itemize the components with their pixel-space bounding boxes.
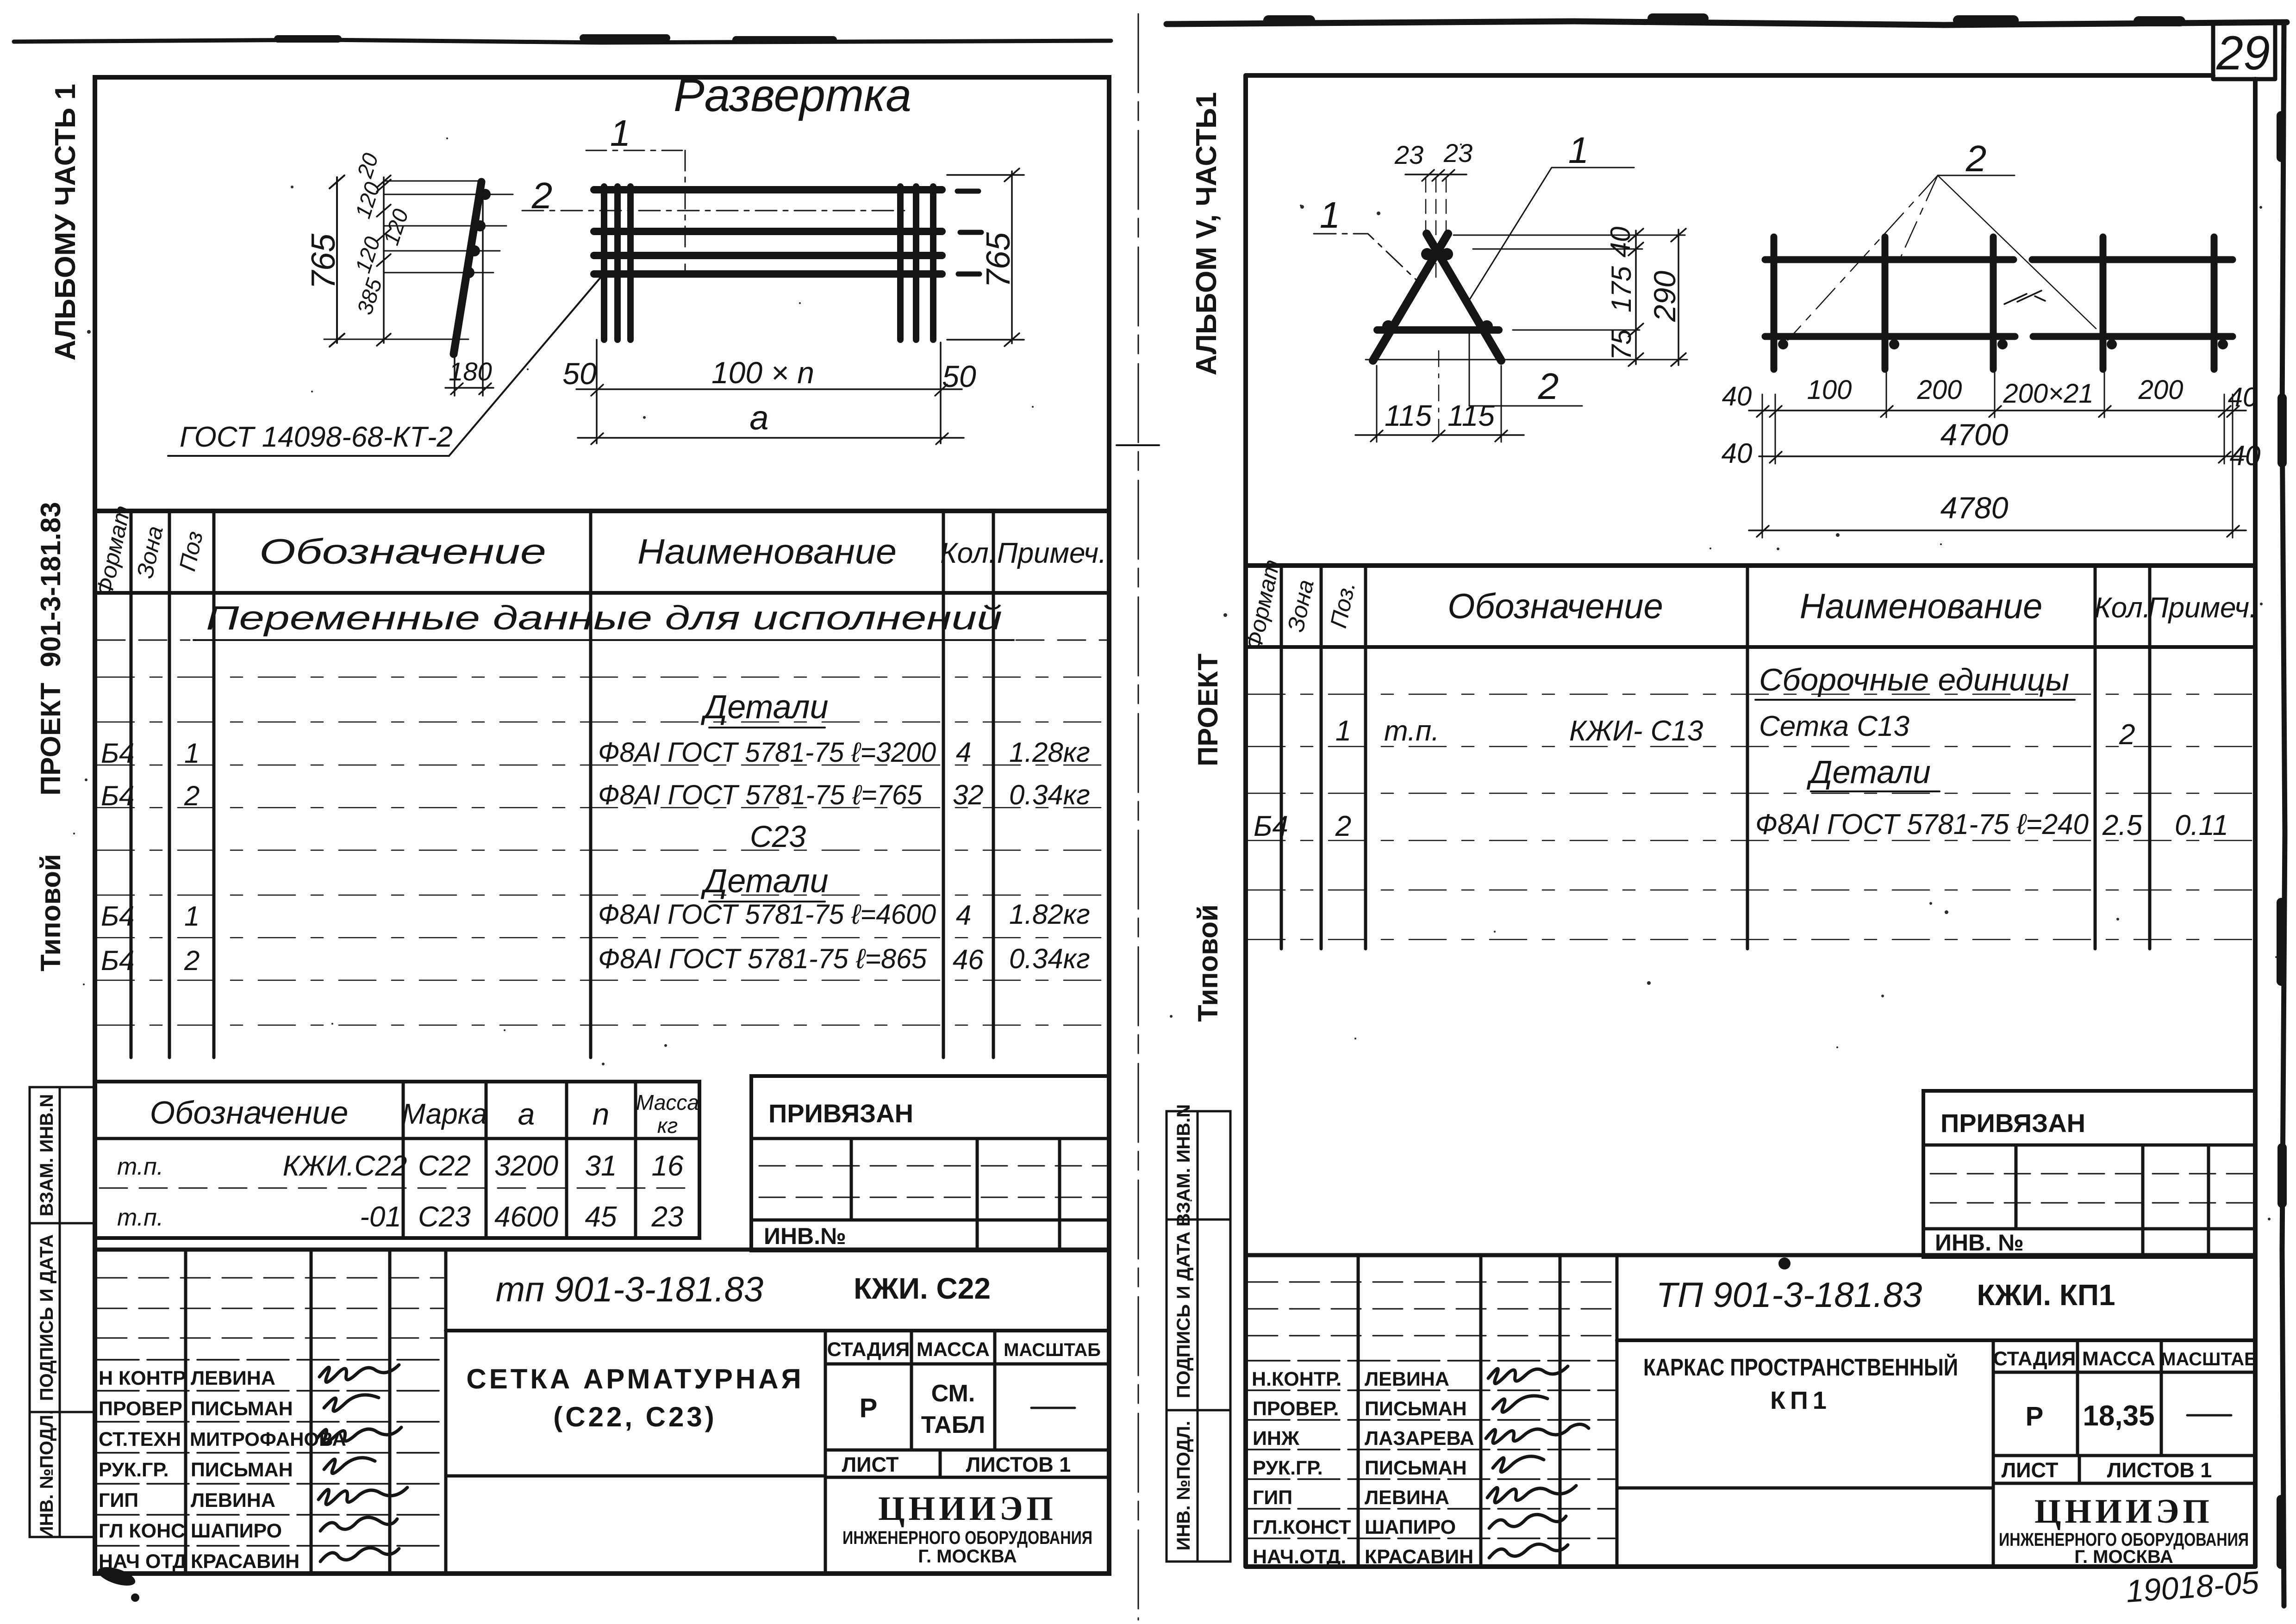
svg-text:Поз: Поз	[174, 529, 208, 573]
svg-text:Переменные данные для испол: Переменные данные для исполнений	[206, 600, 1002, 637]
svg-text:С22: С22	[418, 1150, 471, 1182]
svg-text:Ф8АI ГОСТ 5781-75 ℓ=865: Ф8АI ГОСТ 5781-75 ℓ=865	[598, 943, 927, 974]
svg-text:АЛЬБОМУ ЧАСТЬ 1: АЛЬБОМУ ЧАСТЬ 1	[50, 84, 81, 361]
svg-text:Примеч.: Примеч.	[2148, 592, 2258, 624]
svg-text:ПИСЬМАН: ПИСЬМАН	[191, 1398, 293, 1420]
svg-text:200: 200	[1917, 375, 1962, 405]
svg-text:СМ.: СМ.	[931, 1380, 975, 1407]
svg-text:200: 200	[2138, 375, 2184, 405]
svg-text:1: 1	[184, 901, 200, 932]
svg-text:КЖИ.С22: КЖИ.С22	[283, 1150, 407, 1182]
svg-text:1: 1	[184, 738, 200, 769]
svg-text:Н.КОНТР.: Н.КОНТР.	[1252, 1368, 1341, 1390]
svg-text:ШАПИРО: ШАПИРО	[1365, 1516, 1456, 1538]
svg-text:40: 40	[2228, 382, 2258, 412]
svg-text:40: 40	[1605, 227, 1636, 258]
svg-text:СТ.ТЕХН: СТ.ТЕХН	[99, 1428, 181, 1450]
svg-text:тп 901-3-181.83: тп 901-3-181.83	[496, 1270, 763, 1309]
svg-text:40: 40	[1722, 381, 1752, 411]
svg-text:46: 46	[953, 944, 984, 975]
svg-text:ПИСЬМАН: ПИСЬМАН	[1365, 1398, 1467, 1420]
svg-text:ПРИВЯЗАН: ПРИВЯЗАН	[1940, 1108, 2085, 1138]
svg-text:НАЧ.ОТД.: НАЧ.ОТД.	[1253, 1546, 1346, 1568]
svg-text:Марка: Марка	[401, 1098, 487, 1130]
svg-text:ЛЕВИНА: ЛЕВИНА	[1365, 1368, 1449, 1390]
svg-text:Ф8АI ГОСТ 5781-75 ℓ=4600: Ф8АI ГОСТ 5781-75 ℓ=4600	[598, 899, 936, 930]
svg-text:РУК.ГР.: РУК.ГР.	[99, 1459, 169, 1481]
svg-text:385: 385	[352, 275, 387, 317]
svg-text:КЖИ. КП1: КЖИ. КП1	[1977, 1278, 2115, 1312]
svg-text:Б4: Б4	[1254, 810, 1288, 842]
svg-text:290: 290	[1647, 271, 1682, 322]
svg-text:2: 2	[1335, 810, 1351, 842]
svg-text:ЛАЗАРЕВА: ЛАЗАРЕВА	[1365, 1427, 1474, 1450]
svg-text:1.82кг: 1.82кг	[1009, 899, 1090, 930]
svg-text:ИНВ. №: ИНВ. №	[1935, 1230, 2024, 1256]
svg-text:Б4: Б4	[101, 780, 134, 811]
svg-text:23: 23	[1443, 138, 1472, 168]
svg-text:0.34кг: 0.34кг	[1009, 779, 1090, 810]
svg-text:ТАБЛ: ТАБЛ	[921, 1412, 986, 1438]
svg-text:31: 31	[585, 1150, 617, 1182]
svg-text:ЛИСТОВ 1: ЛИСТОВ 1	[966, 1453, 1071, 1476]
svg-text:ЦНИИЭП: ЦНИИЭП	[878, 1490, 1057, 1528]
svg-text:Кол.: Кол.	[2094, 592, 2151, 624]
svg-text:Развертка: Развертка	[674, 69, 911, 121]
svg-text:С23: С23	[418, 1201, 471, 1233]
svg-text:1: 1	[610, 112, 631, 154]
svg-text:a: a	[749, 398, 768, 437]
svg-text:Н КОНТР: Н КОНТР	[99, 1367, 186, 1389]
svg-text:23: 23	[651, 1201, 684, 1233]
svg-text:ЛИСТ: ЛИСТ	[842, 1453, 899, 1476]
svg-text:180: 180	[449, 357, 492, 386]
svg-text:ПИСЬМАН: ПИСЬМАН	[1365, 1457, 1467, 1479]
svg-text:4780: 4780	[1940, 491, 2009, 525]
svg-text:2: 2	[1965, 138, 1987, 179]
svg-text:ЛИСТ: ЛИСТ	[2002, 1458, 2059, 1482]
svg-text:СТАДИЯ: СТАДИЯ	[827, 1338, 910, 1361]
svg-text:МАСШТАБ: МАСШТАБ	[2160, 1349, 2258, 1369]
svg-text:Детали: Детали	[701, 863, 829, 900]
svg-text:Кол.: Кол.	[940, 537, 997, 569]
svg-text:901-3-181.83: 901-3-181.83	[35, 502, 66, 667]
svg-text:ГИП: ГИП	[1253, 1487, 1292, 1509]
svg-text:Обозначение: Обозначение	[150, 1095, 349, 1131]
svg-text:КЖИ. С22: КЖИ. С22	[854, 1272, 991, 1305]
svg-text:200×21: 200×21	[2003, 379, 2093, 409]
svg-text:4: 4	[956, 737, 971, 768]
svg-text:Обозначение: Обозначение	[1447, 587, 1663, 626]
svg-text:4600: 4600	[494, 1201, 558, 1233]
svg-text:ГЛ КОНС: ГЛ КОНС	[99, 1520, 185, 1542]
svg-text:Зона: Зона	[131, 523, 168, 580]
svg-text:765: 765	[980, 232, 1017, 288]
svg-text:100: 100	[1807, 375, 1852, 405]
svg-text:РУК.ГР.: РУК.ГР.	[1253, 1457, 1323, 1479]
svg-text:Ф8АI ГОСТ 5781-75 ℓ=240: Ф8АI ГОСТ 5781-75 ℓ=240	[1755, 809, 2089, 840]
svg-text:Масса: Масса	[636, 1090, 699, 1114]
svg-text:20: 20	[352, 150, 383, 181]
svg-text:ЛИСТОВ 1: ЛИСТОВ 1	[2107, 1458, 2212, 1482]
svg-text:Типовой: Типовой	[1192, 904, 1223, 1022]
svg-text:50: 50	[942, 359, 976, 393]
svg-text:КЖИ- С13: КЖИ- С13	[1569, 715, 1703, 747]
svg-text:ИНВ.№: ИНВ.№	[764, 1223, 846, 1249]
svg-text:32: 32	[953, 779, 984, 810]
svg-text:Б4: Б4	[101, 945, 134, 976]
svg-text:29: 29	[2216, 26, 2270, 80]
svg-text:4: 4	[956, 900, 971, 931]
svg-text:a: a	[518, 1097, 535, 1131]
svg-text:ПОДПИСЬ И ДАТА: ПОДПИСЬ И ДАТА	[1173, 1232, 1194, 1398]
svg-text:Детали: Детали	[701, 689, 829, 726]
svg-text:АЛЬБОМ V, ЧАСТЬ1: АЛЬБОМ V, ЧАСТЬ1	[1191, 92, 1223, 375]
svg-text:2: 2	[1538, 366, 1559, 407]
svg-text:2.5: 2.5	[2102, 809, 2143, 841]
svg-text:16: 16	[652, 1150, 684, 1182]
svg-text:0.34кг: 0.34кг	[1009, 943, 1090, 974]
svg-text:ИНЖЕНЕРНОГО ОБОРУДОВАНИЯ: ИНЖЕНЕРНОГО ОБОРУДОВАНИЯ	[842, 1528, 1092, 1548]
svg-text:СТАДИЯ: СТАДИЯ	[1993, 1348, 2076, 1370]
svg-text:50: 50	[562, 356, 597, 391]
svg-text:Зона: Зона	[1282, 577, 1318, 634]
svg-text:ПОДПИСЬ И ДАТА: ПОДПИСЬ И ДАТА	[37, 1234, 57, 1401]
svg-text:т.п.: т.п.	[117, 1153, 163, 1180]
svg-text:ПРИВЯЗАН: ПРИВЯЗАН	[768, 1099, 913, 1128]
svg-text:МАССА: МАССА	[917, 1338, 990, 1361]
svg-text:23: 23	[1394, 140, 1423, 169]
svg-text:Ф8АI ГОСТ 5781-75 ℓ=3200: Ф8АI ГОСТ 5781-75 ℓ=3200	[598, 737, 936, 768]
svg-text:ПРОЕКТ: ПРОЕКТ	[1192, 653, 1223, 766]
svg-text:ИНВ. №ПОДЛ.: ИНВ. №ПОДЛ.	[1173, 1421, 1194, 1550]
svg-text:Сетка С13: Сетка С13	[1759, 710, 1909, 742]
svg-text:ПРОВЕР.: ПРОВЕР.	[1253, 1398, 1339, 1420]
svg-text:Г. МОСКВА: Г. МОСКВА	[2074, 1547, 2173, 1567]
svg-text:Примеч.: Примеч.	[997, 537, 1107, 569]
svg-text:ТП 901-3-181.83: ТП 901-3-181.83	[1656, 1276, 1922, 1315]
svg-text:Типовой: Типовой	[35, 854, 66, 971]
svg-text:ЛЕВИНА: ЛЕВИНА	[191, 1489, 275, 1512]
svg-text:Р: Р	[860, 1393, 878, 1423]
svg-text:ПИСЬМАН: ПИСЬМАН	[191, 1459, 293, 1481]
svg-text:2: 2	[2119, 719, 2135, 751]
svg-text:Наименование: Наименование	[1800, 587, 2043, 626]
svg-text:1.28кг: 1.28кг	[1009, 737, 1090, 768]
svg-text:т.п.: т.п.	[1384, 715, 1440, 747]
svg-text:кг: кг	[657, 1114, 678, 1138]
svg-text:1: 1	[1320, 194, 1341, 236]
svg-text:2: 2	[184, 780, 200, 811]
svg-text:0.11: 0.11	[2175, 809, 2228, 841]
svg-text:2: 2	[184, 945, 200, 976]
svg-text:КРАСАВИН: КРАСАВИН	[191, 1550, 299, 1573]
svg-text:ШАПИРО: ШАПИРО	[191, 1520, 282, 1542]
svg-text:МАСШТАБ: МАСШТАБ	[1004, 1340, 1101, 1360]
svg-text:КРАСАВИН: КРАСАВИН	[1365, 1546, 1473, 1568]
svg-text:1: 1	[1335, 715, 1351, 747]
svg-text:Формат: Формат	[91, 503, 136, 598]
svg-text:НАЧ ОТД: НАЧ ОТД	[99, 1550, 187, 1573]
svg-text:СЕТКА АРМАТУРНАЯ: СЕТКА АРМАТУРНАЯ	[466, 1363, 804, 1394]
svg-text:ВЗАМ. ИНВ.N: ВЗАМ. ИНВ.N	[1173, 1104, 1194, 1226]
svg-text:Ф8АI ГОСТ 5781-75 ℓ=765: Ф8АI ГОСТ 5781-75 ℓ=765	[598, 779, 923, 810]
svg-text:ГИП: ГИП	[99, 1489, 138, 1512]
svg-text:ГОСТ 14098-68-КТ-2: ГОСТ 14098-68-КТ-2	[180, 421, 453, 453]
svg-text:ЦНИИЭП: ЦНИИЭП	[2034, 1493, 2213, 1531]
svg-text:(С22, С23): (С22, С23)	[553, 1401, 717, 1432]
svg-text:40: 40	[2230, 440, 2261, 471]
svg-text:Г. МОСКВА: Г. МОСКВА	[918, 1546, 1017, 1567]
svg-text:Обозначение: Обозначение	[259, 532, 546, 572]
svg-text:ЛЕВИНА: ЛЕВИНА	[1365, 1487, 1449, 1509]
svg-text:45: 45	[585, 1201, 617, 1233]
svg-text:Б4: Б4	[101, 901, 134, 932]
svg-text:3200: 3200	[494, 1150, 558, 1182]
svg-text:ИНВ. №ПОДЛ.: ИНВ. №ПОДЛ.	[37, 1410, 57, 1539]
svg-text:75: 75	[1606, 329, 1637, 360]
svg-text:Поз.: Поз.	[1325, 579, 1360, 630]
svg-text:100 × n: 100 × n	[711, 355, 814, 390]
svg-text:т.п.: т.п.	[117, 1204, 163, 1231]
svg-text:ПРОЕКТ: ПРОЕКТ	[35, 683, 66, 796]
svg-text:115: 115	[1447, 399, 1495, 432]
svg-text:-01: -01	[360, 1201, 401, 1233]
svg-text:Б4: Б4	[101, 738, 134, 769]
svg-text:Р: Р	[2026, 1401, 2044, 1431]
svg-text:120: 120	[350, 234, 385, 276]
svg-text:40: 40	[1722, 438, 1753, 469]
svg-text:Наименование: Наименование	[637, 532, 897, 572]
svg-text:115: 115	[1385, 399, 1432, 432]
svg-text:765: 765	[305, 233, 342, 289]
svg-text:МАССА: МАССА	[2082, 1348, 2155, 1370]
svg-text:Детали: Детали	[1806, 754, 1931, 790]
svg-text:ИНЖ: ИНЖ	[1253, 1427, 1300, 1450]
svg-text:4700: 4700	[1940, 417, 2009, 452]
svg-text:18,35: 18,35	[2083, 1400, 2154, 1432]
svg-text:175: 175	[1606, 266, 1637, 312]
svg-text:n: n	[593, 1097, 610, 1131]
svg-text:КП1: КП1	[1770, 1387, 1831, 1414]
svg-text:Сборочные единицы: Сборочные единицы	[1759, 662, 2069, 697]
svg-text:1: 1	[1568, 130, 1589, 171]
svg-text:КАРКАС ПРОСТРАНСТВЕННЫЙ: КАРКАС ПРОСТРАНСТВЕННЫЙ	[1643, 1354, 1958, 1381]
svg-text:ГЛ.КОНСТ: ГЛ.КОНСТ	[1253, 1516, 1351, 1538]
svg-text:ПРОВЕР: ПРОВЕР	[99, 1398, 182, 1420]
svg-text:ВЗАМ. ИНВ.N: ВЗАМ. ИНВ.N	[37, 1094, 57, 1216]
svg-text:ЛЕВИНА: ЛЕВИНА	[191, 1367, 275, 1389]
svg-text:С23: С23	[750, 819, 806, 853]
svg-text:19018-05: 19018-05	[2125, 1565, 2260, 1609]
